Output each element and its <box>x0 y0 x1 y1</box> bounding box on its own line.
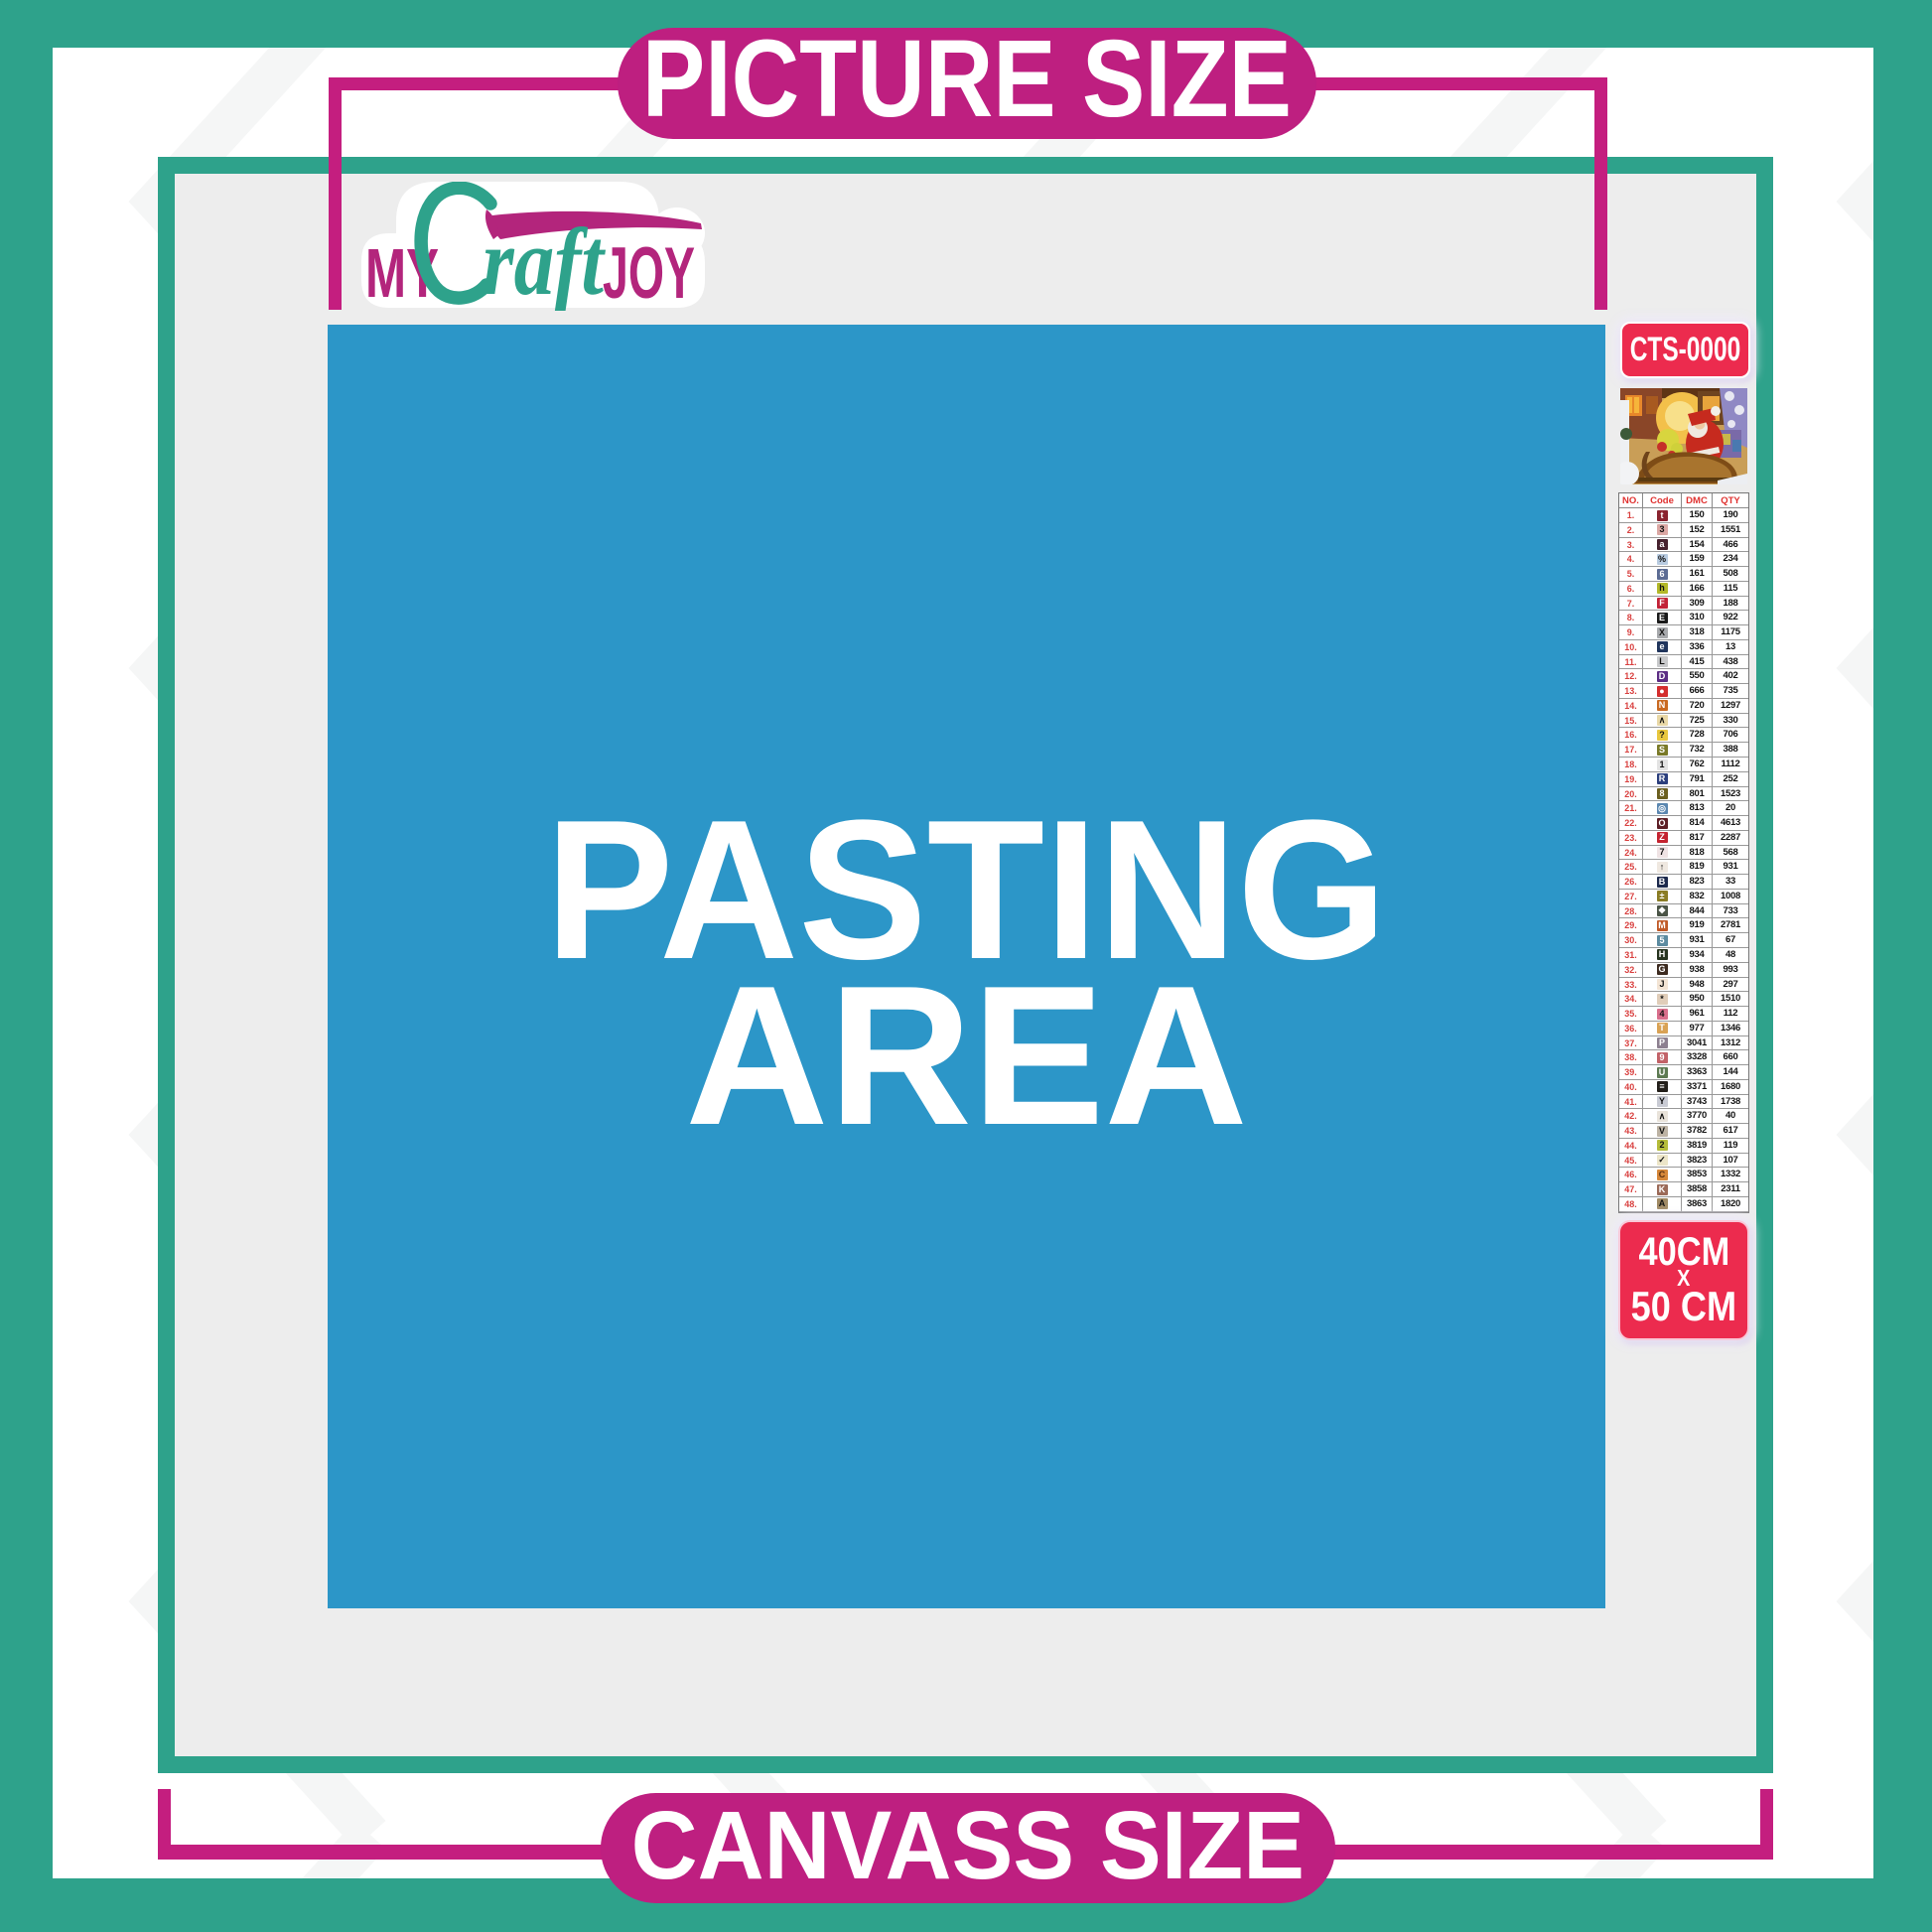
svg-text:JOY: JOY <box>603 233 695 311</box>
svg-text:raft: raft <box>483 208 607 311</box>
